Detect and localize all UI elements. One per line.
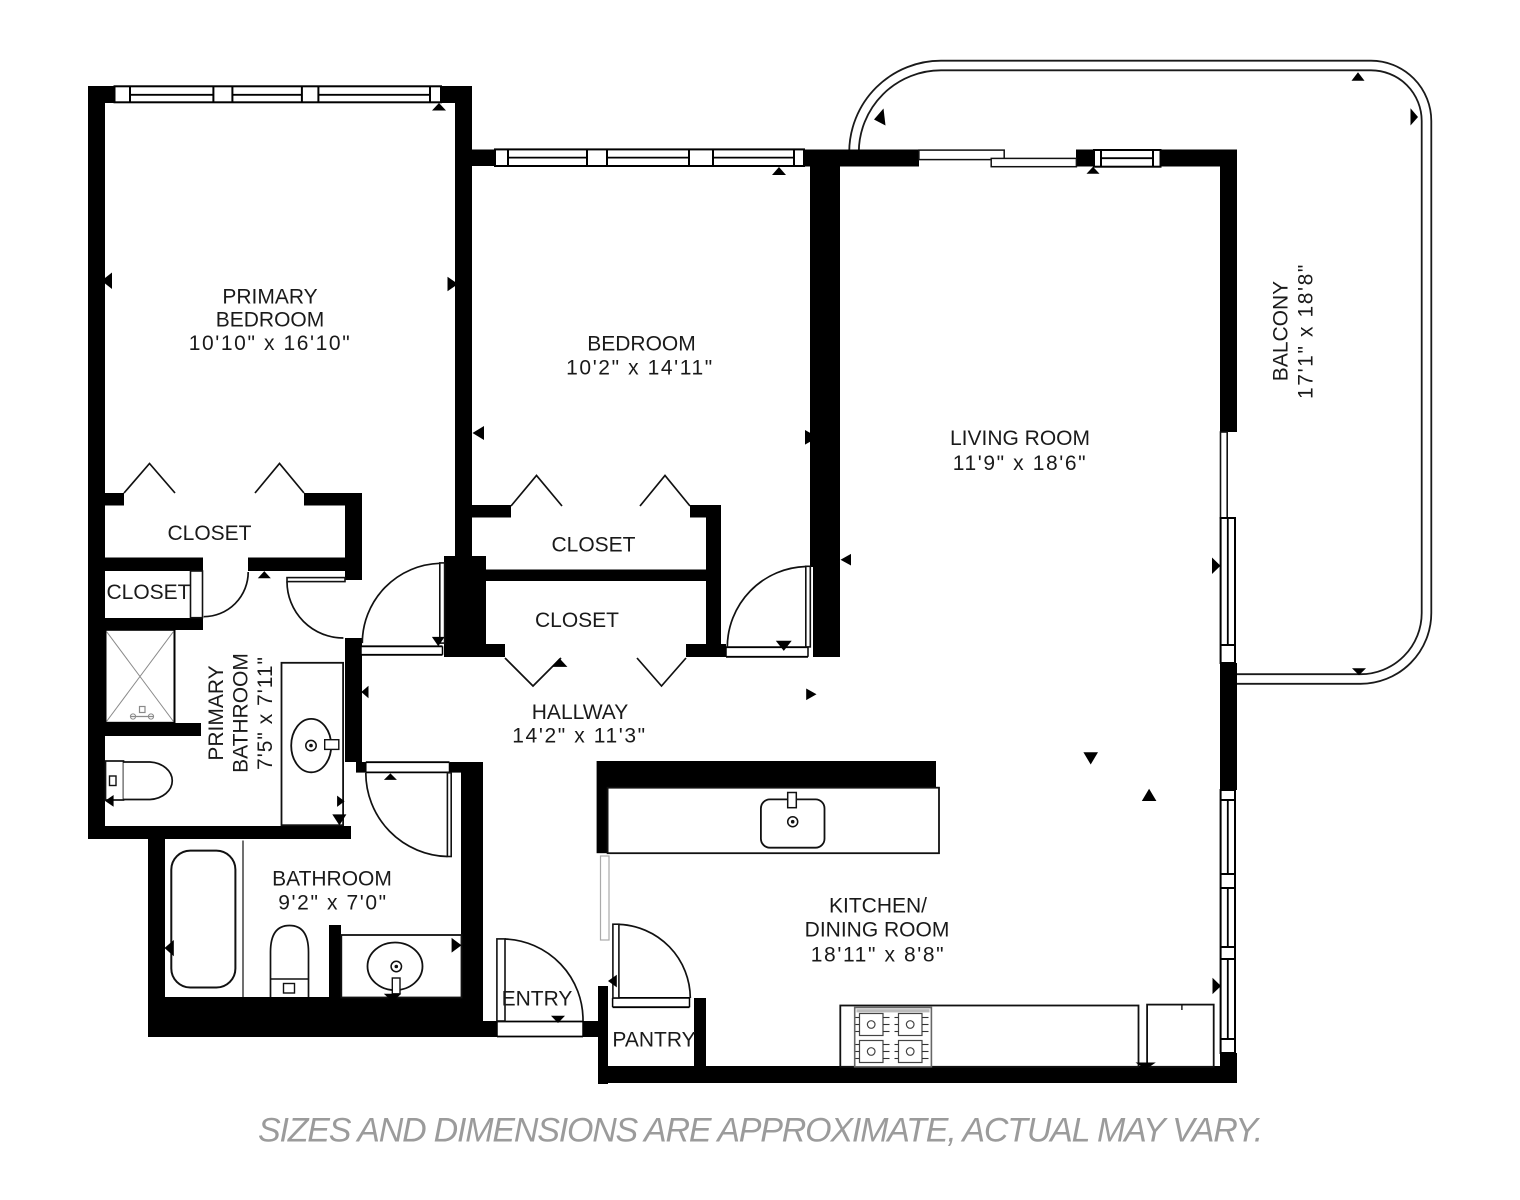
svg-text:10'10" x 16'10": 10'10" x 16'10"	[189, 332, 352, 355]
svg-text:CLOSET: CLOSET	[106, 581, 190, 604]
svg-text:BALCONY: BALCONY	[1270, 281, 1293, 381]
svg-text:CLOSET: CLOSET	[535, 609, 619, 632]
svg-text:PRIMARY: PRIMARY	[222, 285, 317, 308]
svg-text:ENTRY: ENTRY	[502, 988, 573, 1011]
svg-text:BEDROOM: BEDROOM	[587, 333, 696, 356]
svg-text:11'9" x 18'6": 11'9" x 18'6"	[953, 452, 1087, 475]
svg-text:HALLWAY: HALLWAY	[532, 701, 628, 724]
svg-text:10'2" x 14'11": 10'2" x 14'11"	[566, 357, 714, 380]
svg-text:CLOSET: CLOSET	[167, 522, 251, 545]
svg-text:PANTRY: PANTRY	[612, 1029, 695, 1052]
svg-text:SIZES AND DIMENSIONS ARE APPRO: SIZES AND DIMENSIONS ARE APPROXIMATE, AC…	[258, 1112, 1262, 1150]
svg-text:DINING ROOM: DINING ROOM	[805, 918, 950, 941]
svg-text:LIVING ROOM: LIVING ROOM	[950, 427, 1090, 450]
svg-text:CLOSET: CLOSET	[551, 534, 635, 557]
svg-text:BEDROOM: BEDROOM	[216, 309, 325, 332]
svg-text:7'5" x 7'11": 7'5" x 7'11"	[254, 656, 277, 770]
svg-text:BATHROOM: BATHROOM	[272, 868, 392, 891]
svg-text:18'11" x 8'8": 18'11" x 8'8"	[811, 943, 945, 966]
svg-text:KITCHEN/: KITCHEN/	[829, 895, 927, 918]
svg-text:14'2" x 11'3": 14'2" x 11'3"	[512, 724, 646, 747]
svg-text:BATHROOM: BATHROOM	[230, 653, 253, 773]
svg-text:PRIMARY: PRIMARY	[205, 665, 228, 760]
svg-text:9'2" x 7'0": 9'2" x 7'0"	[278, 892, 387, 915]
svg-text:17'1" x 18'8": 17'1" x 18'8"	[1295, 263, 1318, 399]
